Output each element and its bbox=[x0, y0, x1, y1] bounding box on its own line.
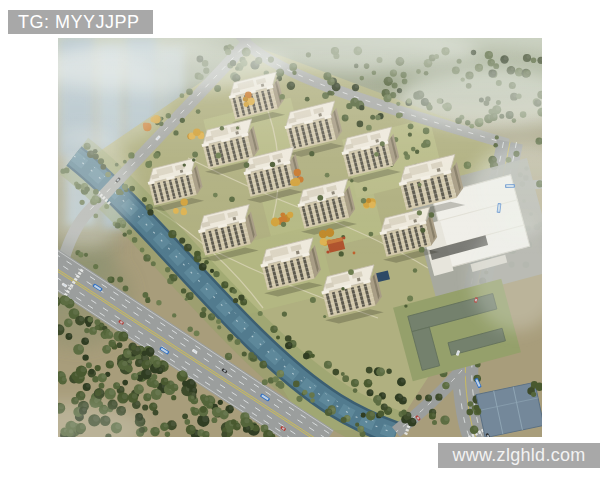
top-watermark-banner: TG: MYYJJPP bbox=[8, 10, 153, 34]
aerial-photo bbox=[58, 38, 542, 437]
aerial-render-scene bbox=[58, 38, 542, 437]
bottom-watermark-text: www.zlghld.com bbox=[452, 445, 585, 465]
top-watermark-text: TG: MYYJJPP bbox=[18, 12, 140, 32]
bottom-watermark-banner: www.zlghld.com bbox=[438, 443, 600, 468]
